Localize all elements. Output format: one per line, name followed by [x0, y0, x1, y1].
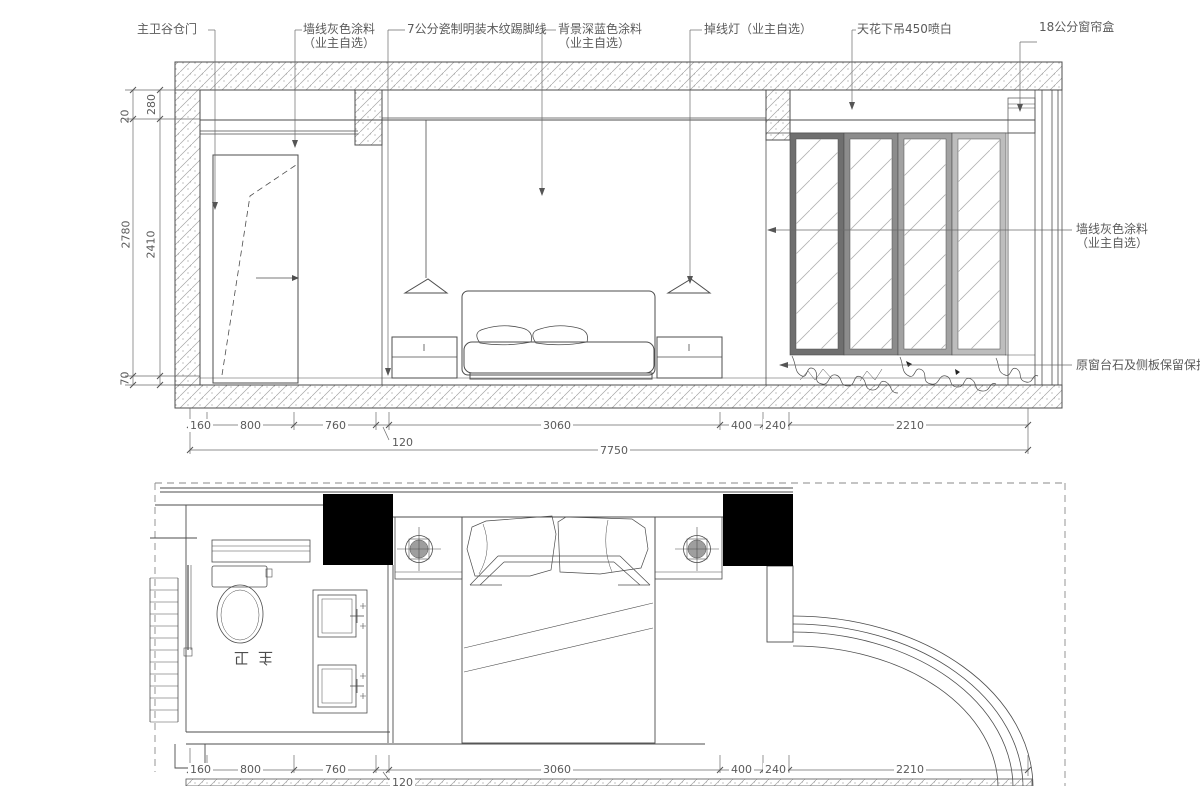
pendant-lamp-left-icon: [405, 279, 447, 293]
callout-ceiling-drop: 天花下吊450喷白: [857, 22, 952, 36]
nightstand-right: [657, 337, 722, 378]
callout-wall-gray-left-sub: （业主自选）: [303, 36, 375, 50]
callout-pendant-light: 掉线灯（业主自选）: [704, 22, 812, 36]
plan-dim-2210: 2210: [894, 763, 926, 776]
barn-door: [213, 155, 299, 383]
wall-lamp-icon: [675, 527, 719, 571]
dim-160: 160: [188, 419, 213, 432]
plan-dim-160: 160: [188, 763, 213, 776]
bathroom-plan: [150, 540, 367, 722]
wall-lamp-icon: [397, 527, 441, 571]
bed-elevation: [392, 120, 722, 379]
nightstand-left: [392, 337, 457, 378]
dim-2210: 2210: [894, 419, 926, 432]
dim-3060: 3060: [541, 419, 573, 432]
plan-dim-120: 120: [390, 776, 415, 786]
window-panel-4: [952, 133, 1006, 355]
callout-wall-gray-right: 墙线灰色涂料: [1076, 222, 1148, 236]
callout-wall-gray-left: 墙线灰色涂料: [303, 22, 375, 36]
callout-wall-gray-right-sub: （业主自选）: [1076, 236, 1148, 250]
right-wall: [1005, 90, 1062, 385]
callout-window-sill: 原窗台石及侧板保留保护: [1076, 358, 1200, 372]
cad-linework: [0, 0, 1200, 786]
wall-column: [767, 566, 793, 642]
pillow-plan-left: [467, 516, 556, 576]
vanity-counter: [212, 540, 310, 562]
curved-window-plan: [793, 616, 1033, 786]
plan-dim-400: 400: [729, 763, 754, 776]
ceiling-slab: [175, 62, 1062, 90]
dim-total-7750: 7750: [598, 444, 630, 457]
callout-curtain-box: 18公分窗帘盒: [1039, 20, 1114, 34]
floor-slab: [175, 385, 1062, 408]
headboard: [462, 291, 655, 375]
plan-dim-800: 800: [238, 763, 263, 776]
window-elevation: [766, 133, 1038, 393]
dim-20: 20: [119, 110, 132, 124]
window-panel-1: [790, 133, 844, 355]
plan-dim-760: 760: [323, 763, 348, 776]
dim-120: 120: [390, 436, 415, 449]
beam-left: [355, 90, 382, 145]
plan-view: [150, 483, 1065, 786]
faucet-icon: [350, 603, 366, 629]
wardrobe-block-left: [323, 494, 393, 565]
dim-400: 400: [729, 419, 754, 432]
window-panel-2: [844, 133, 898, 355]
callout-bg-paint-sub: （业主自选）: [558, 36, 630, 50]
dim-70: 70: [119, 372, 132, 386]
dim-2410: 2410: [145, 231, 158, 259]
toilet-icon: [212, 566, 272, 643]
room-label-master-bath: 主卫: [225, 648, 273, 669]
double-sink-vanity: [313, 590, 367, 713]
faucet-icon: [350, 673, 366, 699]
dim-800: 800: [238, 419, 263, 432]
sliding-door: [184, 565, 192, 656]
elevation-view: [125, 30, 1072, 454]
wardrobe-block-right: [723, 494, 793, 566]
plan-boundary: [155, 483, 1065, 786]
curtain-box: [1008, 98, 1035, 133]
dim-280: 280: [145, 94, 158, 115]
bed-plan: [462, 516, 655, 743]
plan-dim-240: 240: [763, 763, 788, 776]
cad-drawing-canvas: 主卫谷仓门 墙线灰色涂料 （业主自选） 7公分瓷制明装木纹踢脚线 背景深蓝色涂料…: [0, 0, 1200, 786]
mattress: [464, 342, 654, 373]
window-panel-3: [898, 133, 952, 355]
callout-barn-door: 主卫谷仓门: [137, 22, 197, 36]
dim-2780: 2780: [120, 221, 133, 249]
dim-760: 760: [323, 419, 348, 432]
left-wall: [175, 90, 200, 385]
callout-skirting: 7公分瓷制明装木纹踢脚线: [407, 22, 547, 36]
dim-240: 240: [763, 419, 788, 432]
pillow-plan-right: [558, 517, 648, 574]
callout-bg-paint: 背景深蓝色涂料: [558, 22, 642, 36]
louver-radiator: [150, 578, 178, 722]
beam-right: [766, 90, 790, 140]
plan-dim-3060: 3060: [541, 763, 573, 776]
